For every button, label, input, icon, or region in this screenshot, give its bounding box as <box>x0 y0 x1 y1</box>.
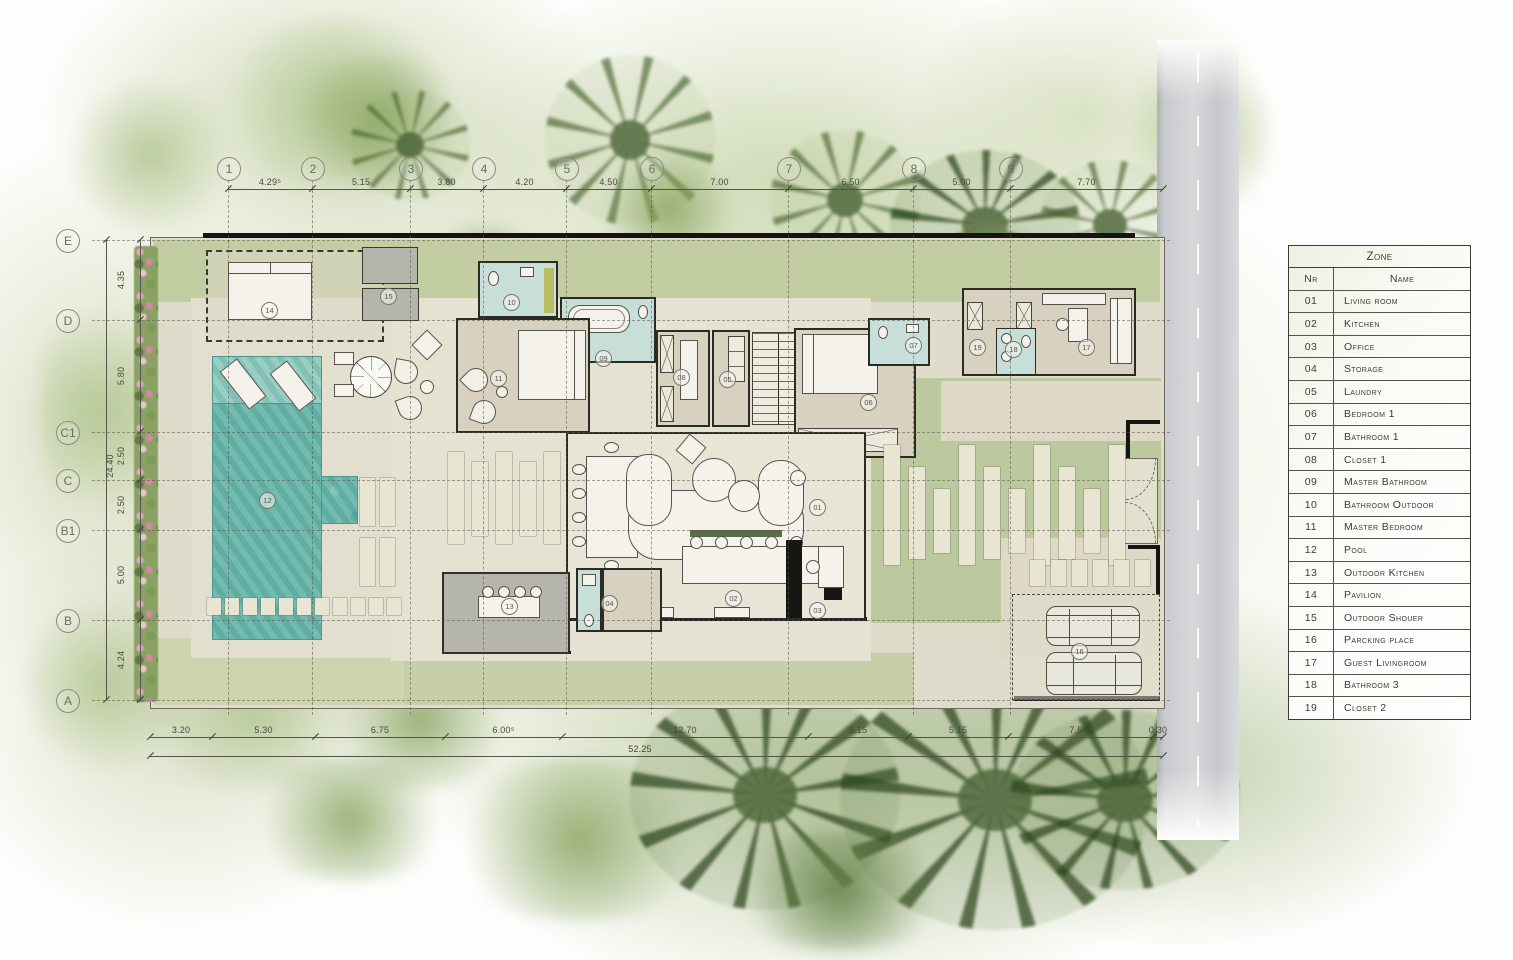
paver <box>387 598 401 615</box>
grid-bubble: B1 <box>56 519 80 543</box>
road-centerline <box>1197 52 1199 828</box>
legend-row-nr: 10 <box>1289 494 1334 516</box>
entry-gate <box>1124 458 1158 544</box>
dimension-label: 2.50 <box>116 447 126 465</box>
legend-row-name: Closet 1 <box>1334 449 1470 471</box>
bar-stool <box>498 586 510 598</box>
dimension-label: 6.00⁵ <box>492 725 514 735</box>
dimension-line <box>140 240 141 700</box>
paver <box>959 445 975 565</box>
paver <box>1093 560 1108 586</box>
grid-bubble: 8 <box>902 157 926 181</box>
dimension-label: 4.50 <box>599 177 617 187</box>
dimension-label: 2.50 <box>116 496 126 514</box>
sofa-arm <box>626 454 672 526</box>
legend-row-nr: 17 <box>1289 652 1334 674</box>
legend-table: Zone Nr Name 01Living room02Kitchen03Off… <box>1288 245 1471 720</box>
legend-row: 07Bathroom 1 <box>1289 426 1470 449</box>
paver <box>1072 560 1087 586</box>
grid-line-horizontal <box>92 530 1170 531</box>
dimension-label: 5.80 <box>116 367 126 385</box>
office-chair <box>806 560 820 574</box>
paver <box>351 598 365 615</box>
dimension-label: 7.50⁵ <box>1069 725 1091 735</box>
grid-bubble: 6 <box>640 157 664 181</box>
tree <box>240 760 460 880</box>
legend-row-name: Outdoor Kitchen <box>1334 562 1470 584</box>
office-desk <box>818 546 844 588</box>
room-number-badge: 15 <box>380 288 397 305</box>
dimension-label: 3.20 <box>172 725 190 735</box>
grid-bubble: 7 <box>777 157 801 181</box>
coffee-table <box>728 480 760 512</box>
legend-row: 11Master Bedroom <box>1289 517 1470 540</box>
legend-row: 01Living room <box>1289 291 1470 314</box>
legend-row-name: Guest Livingroom <box>1334 652 1470 674</box>
room-number-badge: 01 <box>809 499 826 516</box>
legend-row: 16Parcking place <box>1289 630 1470 653</box>
legend-row: 19Closet 2 <box>1289 697 1470 719</box>
legend-row: 03Office <box>1289 336 1470 359</box>
paver <box>1084 489 1100 553</box>
bar-stool <box>765 536 778 549</box>
sun-chair <box>334 352 354 365</box>
dining-chair <box>572 536 586 547</box>
legend-row-nr: 02 <box>1289 313 1334 335</box>
legend-row-nr: 11 <box>1289 517 1334 539</box>
legend-rows: 01Living room02Kitchen03Office04Storage0… <box>1289 291 1470 719</box>
grid-line-vertical <box>410 180 411 715</box>
road <box>1157 40 1239 840</box>
room-number-badge: 07 <box>905 337 922 354</box>
bathroom-outdoor <box>478 261 558 318</box>
legend-row: 09Master Bathroom <box>1289 471 1470 494</box>
grid-bubble: C <box>56 469 80 493</box>
dimension-label: 5.00 <box>952 177 970 187</box>
flower-bed <box>134 246 158 702</box>
grid-line-horizontal <box>92 432 1170 433</box>
room-number-badge: 16 <box>1071 643 1088 660</box>
paver <box>360 478 375 526</box>
room-number-badge: 17 <box>1078 339 1095 356</box>
room-number-badge: 12 <box>259 492 276 509</box>
wardrobe <box>660 335 674 373</box>
wardrobe <box>660 386 674 422</box>
dimension-label: 5.15 <box>849 725 867 735</box>
small-bathroom <box>576 568 602 632</box>
paver <box>207 598 221 615</box>
paver <box>1135 560 1150 586</box>
umbrella <box>350 356 392 398</box>
side-table <box>496 386 508 398</box>
room-number-badge: 13 <box>501 598 518 615</box>
road-fade <box>1157 40 1239 100</box>
armchair <box>459 363 493 397</box>
legend-row: 13Outdoor Kitchen <box>1289 562 1470 585</box>
toilet <box>488 271 499 286</box>
legend-row-nr: 14 <box>1289 584 1334 606</box>
dimension-total-label: 52.25 <box>628 744 652 754</box>
paver <box>380 478 395 526</box>
paver <box>297 598 311 615</box>
site-plan-canvas: 123456789EDC1CB1BA 4.29⁵5.153.804.204.50… <box>0 0 1513 960</box>
paver <box>472 462 488 536</box>
sink <box>582 574 596 586</box>
room-number-badge: 08 <box>673 369 690 386</box>
wardrobe <box>967 302 983 330</box>
legend-row-name: Bathroom 1 <box>1334 426 1470 448</box>
dimension-label: 4.29⁵ <box>259 177 281 187</box>
dimension-label: 7.00 <box>710 177 728 187</box>
bed-line <box>229 273 311 274</box>
car <box>1046 606 1140 646</box>
guest-desk <box>1068 308 1088 342</box>
paver <box>520 462 536 536</box>
wall-north <box>203 233 1135 238</box>
grid-line-horizontal <box>92 240 1170 241</box>
room-number-badge: 11 <box>490 370 507 387</box>
room-number-badge: 14 <box>261 302 278 319</box>
bench <box>544 268 554 313</box>
grid-bubble: 9 <box>999 157 1023 181</box>
toilet <box>878 326 888 339</box>
paver <box>380 538 395 586</box>
legend-row-name: Bathroom 3 <box>1334 675 1470 697</box>
legend-row-nr: 03 <box>1289 336 1334 358</box>
headboard <box>813 335 814 393</box>
wall-entry-north <box>1128 420 1160 424</box>
side-table <box>790 470 806 486</box>
legend-row: 04Storage <box>1289 358 1470 381</box>
paver <box>884 445 900 565</box>
legend-row-name: Storage <box>1334 358 1470 380</box>
tree <box>720 830 960 950</box>
paver <box>333 598 347 615</box>
legend-row-nr: 15 <box>1289 607 1334 629</box>
grid-bubble: A <box>56 689 80 713</box>
legend-row-name: Master Bathroom <box>1334 471 1470 493</box>
grid-bubble: E <box>56 229 80 253</box>
legend-row-name: Master Bedroom <box>1334 517 1470 539</box>
dining-chair <box>572 488 586 499</box>
legend-row-nr: 06 <box>1289 404 1334 426</box>
toilet <box>1021 335 1031 348</box>
legend-row: 05Laundry <box>1289 381 1470 404</box>
headboard <box>574 331 575 399</box>
dimension-label: 3.80 <box>437 177 455 187</box>
dining-chair <box>604 442 619 453</box>
gate-door-arc <box>1125 502 1156 543</box>
legend-row-name: Laundry <box>1334 381 1470 403</box>
grid-line-horizontal <box>92 620 1170 621</box>
grid-bubble: D <box>56 309 80 333</box>
legend-row-nr: 05 <box>1289 381 1334 403</box>
legend-row-nr: 13 <box>1289 562 1334 584</box>
legend-row: 15Outdoor Shouer <box>1289 607 1470 630</box>
legend-row-nr: 07 <box>1289 426 1334 448</box>
wall-entry-side <box>1126 420 1130 458</box>
grid-line-vertical <box>566 180 567 715</box>
dimension-label: 6.50 <box>841 177 859 187</box>
grid-line-vertical <box>913 180 914 715</box>
dimension-label: 4.20 <box>515 177 533 187</box>
legend-row-name: Kitchen <box>1334 313 1470 335</box>
dimension-label: 5.00 <box>116 566 126 584</box>
armchair <box>469 397 500 428</box>
paver <box>1030 560 1045 586</box>
legend-row: 14Pavilion <box>1289 584 1470 607</box>
paver <box>1109 445 1125 565</box>
room-number-badge: 19 <box>969 339 986 356</box>
dimension-label: 6.75 <box>371 725 389 735</box>
dining-chair <box>572 512 586 523</box>
dimension-total-line <box>150 756 1163 757</box>
guest-suite <box>962 288 1136 376</box>
legend-row-name: Parcking place <box>1334 630 1470 652</box>
legend-row-nr: 12 <box>1289 539 1334 561</box>
kitchenette <box>1042 293 1106 305</box>
wardrobe <box>1016 302 1032 330</box>
dimension-label: 4.24 <box>116 651 126 669</box>
grid-line-horizontal <box>92 480 1170 481</box>
dimension-label: 12.70 <box>673 725 697 735</box>
dimension-label: 5.15 <box>949 725 967 735</box>
sofa-cushion-line <box>1117 299 1118 363</box>
legend-row-name: Pavilion <box>1334 584 1470 606</box>
room-number-badge: 09 <box>595 350 612 367</box>
legend-row: 17Guest Livingroom <box>1289 652 1470 675</box>
wall-entry-side2 <box>1156 549 1160 595</box>
paver <box>315 598 329 615</box>
bar-stool <box>690 536 703 549</box>
dimension-line <box>228 189 1163 190</box>
dimension-label: 7.70 <box>1077 177 1095 187</box>
grid-line-vertical <box>1010 180 1011 715</box>
grid-bubble: 3 <box>399 157 423 181</box>
legend-row-nr: 09 <box>1289 471 1334 493</box>
paver <box>1051 560 1066 586</box>
legend-row-nr: 08 <box>1289 449 1334 471</box>
paver <box>243 598 257 615</box>
legend-row-name: Living room <box>1334 291 1470 313</box>
pool-step <box>321 476 358 524</box>
stair-rail <box>778 333 779 424</box>
paver <box>261 598 275 615</box>
sink <box>520 267 534 277</box>
paver <box>934 489 950 553</box>
dimension-label: 5.30 <box>254 725 272 735</box>
legend-row: 12Pool <box>1289 539 1470 562</box>
bar-stool <box>530 586 542 598</box>
paver <box>360 538 375 586</box>
paver <box>279 598 293 615</box>
cooktop <box>714 607 750 618</box>
legend-row: 08Closet 1 <box>1289 449 1470 472</box>
dimension-label: 0.30 <box>1149 725 1167 735</box>
legend-row-name: Bedroom 1 <box>1334 404 1470 426</box>
sun-chair <box>334 384 354 397</box>
legend-title: Zone <box>1289 246 1470 268</box>
room-number-badge: 04 <box>601 595 618 612</box>
room-number-badge: 06 <box>860 394 877 411</box>
dimension-total-label: 24.40 <box>105 454 115 478</box>
bar-stool <box>715 536 728 549</box>
bar-stool <box>514 586 526 598</box>
legend-row: 10Bathroom Outdoor <box>1289 494 1470 517</box>
toilet <box>638 305 648 319</box>
room-number-badge: 10 <box>503 294 520 311</box>
legend-row-nr: 16 <box>1289 630 1334 652</box>
paver <box>1114 560 1129 586</box>
legend-row-nr: 19 <box>1289 697 1334 719</box>
room-number-badge: 02 <box>725 590 742 607</box>
legend-row: 02Kitchen <box>1289 313 1470 336</box>
dimension-line <box>150 737 1163 738</box>
grid-bubble: C1 <box>56 421 80 445</box>
legend-row-nr: 18 <box>1289 675 1334 697</box>
legend-row-name: Office <box>1334 336 1470 358</box>
legend-row-name: Bathroom Outdoor <box>1334 494 1470 516</box>
guest-sofa <box>1110 298 1132 364</box>
legend-row: 06Bedroom 1 <box>1289 404 1470 427</box>
grid-line-vertical <box>483 180 484 715</box>
room-number-badge: 18 <box>1005 341 1022 358</box>
dimension-label: 4.35 <box>116 271 126 289</box>
car <box>1046 652 1142 695</box>
grid-bubble: 4 <box>472 157 496 181</box>
grid-line-vertical <box>788 180 789 715</box>
legend-row-nr: 04 <box>1289 358 1334 380</box>
room-number-badge: 05 <box>719 371 736 388</box>
pillow-divider <box>270 263 271 273</box>
dimension-label: 5.15 <box>352 177 370 187</box>
grid-bubble: 5 <box>555 157 579 181</box>
legend-row-name: Outdoor Shouer <box>1334 607 1470 629</box>
bed <box>802 334 878 394</box>
legend-col-nr: Nr <box>1289 268 1334 290</box>
paver <box>1034 445 1050 565</box>
legend-row-name: Closet 2 <box>1334 697 1470 719</box>
legend-col-name: Name <box>1334 268 1470 290</box>
legend-row-nr: 01 <box>1289 291 1334 313</box>
paver <box>369 598 383 615</box>
room-number-badge: 03 <box>809 602 826 619</box>
master-bedroom <box>456 318 590 433</box>
grid-bubble: 2 <box>301 157 325 181</box>
legend-row: 18Bathroom 3 <box>1289 675 1470 698</box>
grid-line-horizontal <box>92 320 1170 321</box>
grid-line-vertical <box>312 180 313 715</box>
grid-line-vertical <box>651 180 652 715</box>
bar-stool <box>740 536 753 549</box>
grid-bubble: B <box>56 609 80 633</box>
legend-row-name: Pool <box>1334 539 1470 561</box>
paver <box>1009 489 1025 553</box>
grid-bubble: 1 <box>217 157 241 181</box>
bed <box>518 330 586 400</box>
grid-line-vertical <box>228 180 229 715</box>
legend-header-row: Nr Name <box>1289 268 1470 291</box>
road-fade <box>1157 770 1239 840</box>
dining-chair <box>572 464 586 475</box>
grid-line-horizontal <box>92 700 1170 701</box>
side-table <box>420 380 434 394</box>
